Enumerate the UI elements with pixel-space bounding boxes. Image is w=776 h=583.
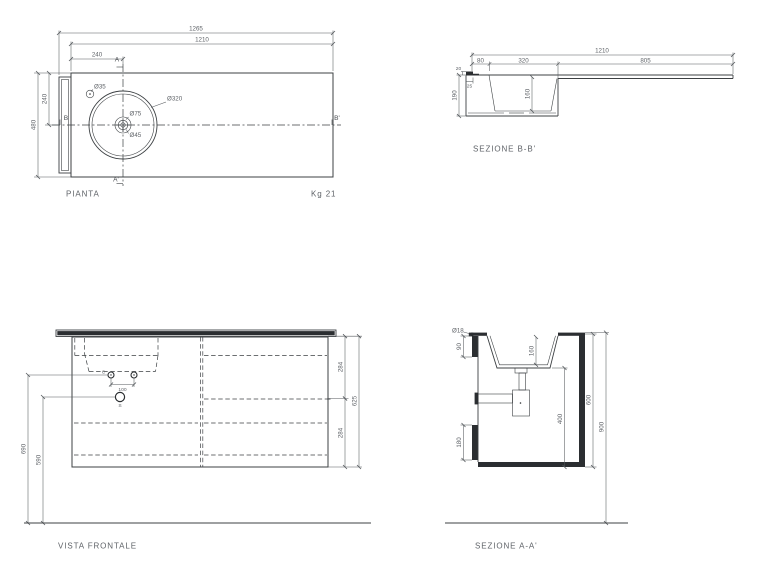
bb-dim-width: 1210 <box>472 48 733 75</box>
aa-drain-trap <box>475 368 530 416</box>
dim-label-590: 590 <box>36 454 43 465</box>
bb-profile <box>466 72 733 117</box>
dim-label-90: 90 <box>456 343 463 350</box>
section-mark-a-bottom: A' <box>113 177 119 184</box>
aa-lower-bracket <box>472 425 478 460</box>
dim-label-900: 900 <box>599 421 606 432</box>
view-title-vista-frontale: VISTA FRONTALE <box>58 542 137 551</box>
dim-label-dia35: Ø35 <box>94 84 106 91</box>
aa-front-panel <box>579 334 585 467</box>
dim-label-480: 480 <box>31 119 38 130</box>
aa-dim-basin-depth: 160 <box>529 337 537 365</box>
aa-dim-trap-height: 400 <box>552 368 568 467</box>
aa-dim-inner-height: 600 <box>585 334 597 467</box>
dim-label-600: 600 <box>586 394 593 405</box>
plan-dim-top-width: 1210 <box>71 37 333 72</box>
plan-view: A A' B B' 1265 1210 240 240 480 <box>31 26 342 199</box>
dim-label-25: 25 <box>467 84 473 90</box>
section-mark-b-left: B <box>64 115 69 122</box>
front-dim-drain-height: 590 <box>36 397 116 523</box>
front-cabinet <box>72 337 328 467</box>
view-title-sezione-aa: SEZIONE A-A' <box>475 542 538 551</box>
dim-label-805: 805 <box>640 58 651 65</box>
front-view: C 100 S 690 590 284 284 <box>21 330 372 551</box>
aa-dim-total-height: 900 <box>585 333 609 523</box>
dim-label-1210-bb: 1210 <box>595 48 609 55</box>
dim-label-190: 190 <box>452 90 459 101</box>
technical-drawing-sheet: A A' B B' 1265 1210 240 240 480 <box>0 0 776 583</box>
plan-dims-left: 240 480 <box>31 73 72 177</box>
front-supply-points: C 100 <box>102 370 137 394</box>
front-center-divider <box>201 337 203 467</box>
dim-label-284-bottom: 284 <box>338 427 345 438</box>
dim-label-1210: 1210 <box>195 37 209 44</box>
front-hidden-basin <box>75 338 158 372</box>
aa-dim-lower-bracket: 180 <box>456 425 472 460</box>
dim-label-1265: 1265 <box>189 26 203 33</box>
bb-back-lip <box>466 72 479 76</box>
view-title-sezione-bb: SEZIONE B-B' <box>473 145 536 154</box>
dim-label-dia320: Ø320 <box>167 96 183 103</box>
aa-countertop <box>469 333 585 337</box>
section-bb-view: 1210 80 320 805 190 160 25 <box>452 48 734 154</box>
aa-upper-bracket <box>472 336 478 357</box>
bb-dim-height: 190 <box>452 75 467 116</box>
front-hidden-drawers <box>74 356 331 456</box>
aa-bottom-panel <box>478 462 579 467</box>
aa-basin-bowl <box>487 336 558 368</box>
dim-label-284-top: 284 <box>338 361 345 372</box>
dim-label-625: 625 <box>352 395 359 406</box>
bb-dim-lip: 25 20 <box>456 66 473 90</box>
dim-label-20: 20 <box>456 66 462 72</box>
dim-label-dia75: Ø75 <box>130 111 142 118</box>
dim-label-80: 80 <box>477 58 484 65</box>
dim-label-240-left: 240 <box>42 93 49 104</box>
dim-label-400: 400 <box>557 413 564 424</box>
bb-dim-basin-depth: 160 <box>525 77 533 111</box>
section-mark-a-top: A <box>115 57 120 64</box>
plan-dim-total-width: 1265 <box>59 26 333 76</box>
dim-label-dia45: Ø45 <box>130 132 142 139</box>
front-drain-point: S <box>115 392 124 409</box>
dim-label-320-bb: 320 <box>518 58 529 65</box>
section-mark-b-right: B' <box>334 115 340 122</box>
dim-label-180: 180 <box>456 437 463 448</box>
front-countertop <box>56 330 336 337</box>
weight-label: Kg 21 <box>311 190 336 199</box>
view-title-pianta: PIANTA <box>66 190 100 199</box>
aa-dim-upper-bracket: 90 <box>456 336 472 357</box>
dim-label-160-aa: 160 <box>529 345 536 356</box>
aa-leader-hole: Ø18 <box>452 328 469 335</box>
dim-label-690: 690 <box>21 443 28 454</box>
dim-label-dia18: Ø18 <box>452 328 464 335</box>
dim-label-160-bb: 160 <box>525 88 532 99</box>
drain-mark-s: S <box>118 403 122 409</box>
section-line-b <box>52 120 341 126</box>
section-aa-view: Ø18 90 160 400 600 900 <box>445 328 628 551</box>
plan-leader-faucet-outer: Ø75 <box>126 111 142 120</box>
plan-leader-basin: Ø320 <box>151 96 183 108</box>
front-dims-right: 284 284 625 <box>328 336 362 467</box>
plan-leader-hole: Ø35 <box>91 84 106 92</box>
drawing-canvas: A A' B B' 1265 1210 240 240 480 <box>0 0 776 583</box>
plan-mounting-hole <box>86 90 94 98</box>
dim-label-240-top: 240 <box>92 52 103 59</box>
supply-mark-c: C <box>102 370 106 376</box>
